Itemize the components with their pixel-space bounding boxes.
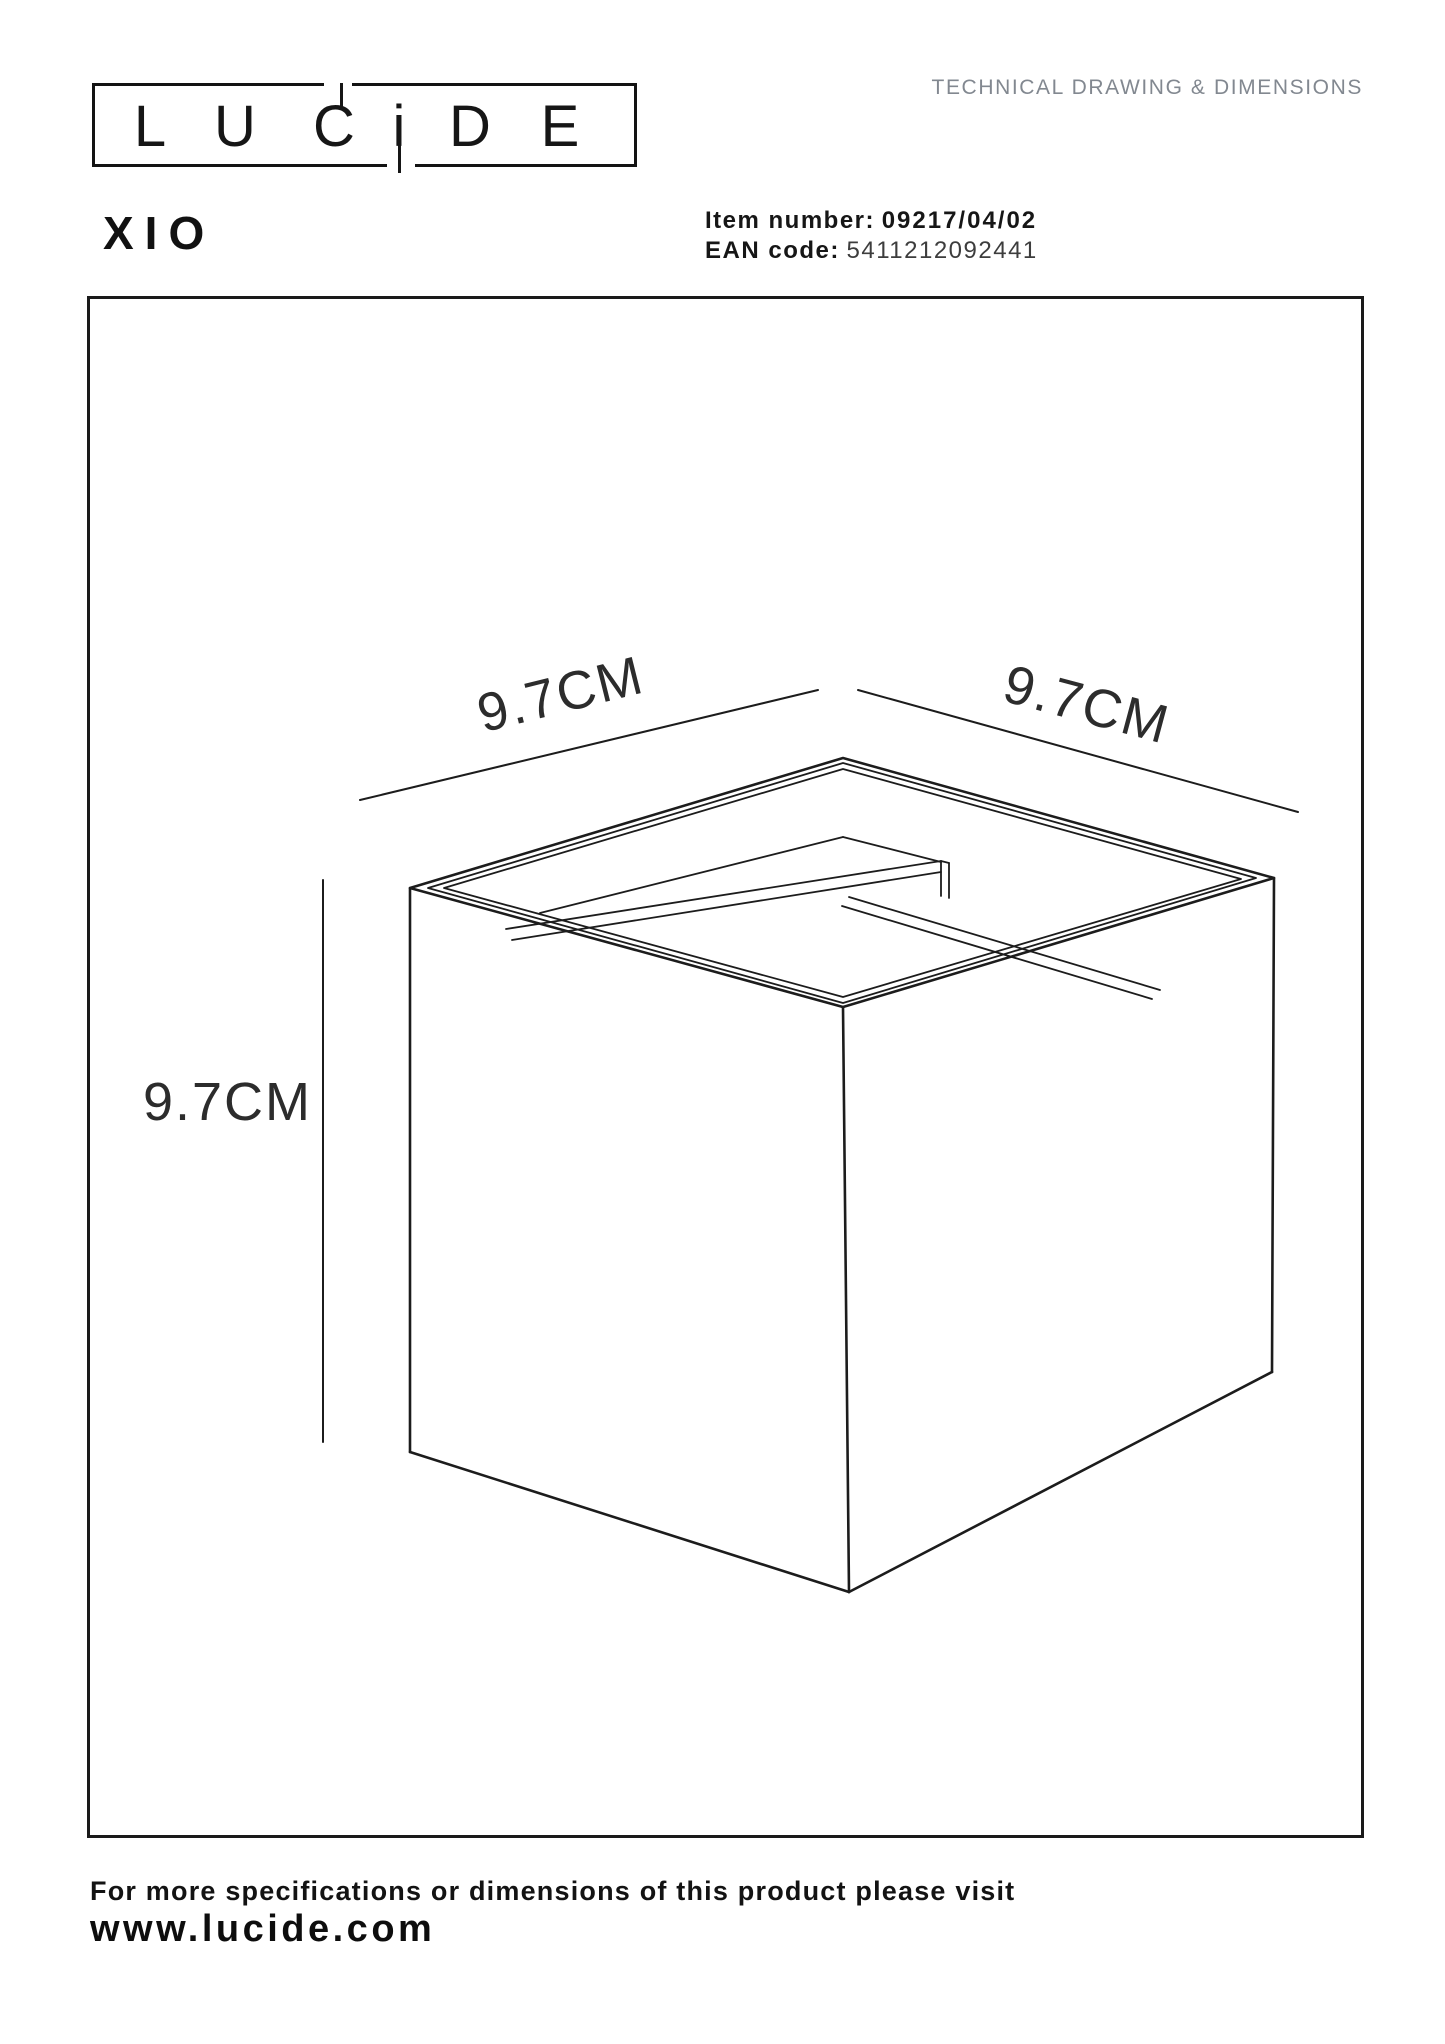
dim-label-height: 9.7CM <box>143 1072 312 1132</box>
rim-outer-line <box>428 763 1256 1003</box>
dim-label-width: 9.7CM <box>471 645 650 744</box>
plate-front-top-edge <box>506 861 941 929</box>
rim-inner-line <box>444 769 1241 997</box>
footer-note: For more specifications or dimensions of… <box>90 1876 1015 1907</box>
inner-back-left-junction <box>540 837 843 913</box>
dim-label-depth: 9.7CM <box>997 654 1176 756</box>
cube-right-edge <box>1272 878 1274 1372</box>
footer-website: www.lucide.com <box>90 1908 435 1951</box>
technical-drawing: 9.7CM 9.7CM 9.7CM <box>0 0 1445 2044</box>
cube-bottom-left-edge <box>410 1452 849 1592</box>
cube-front-edge <box>843 1007 849 1592</box>
inner-back-right-junction <box>843 837 941 862</box>
cube-bottom-right-edge <box>849 1372 1272 1592</box>
divider-top-edge <box>849 897 1160 990</box>
cube-top-face <box>410 758 1274 1007</box>
plate-right-end-top <box>941 861 949 863</box>
